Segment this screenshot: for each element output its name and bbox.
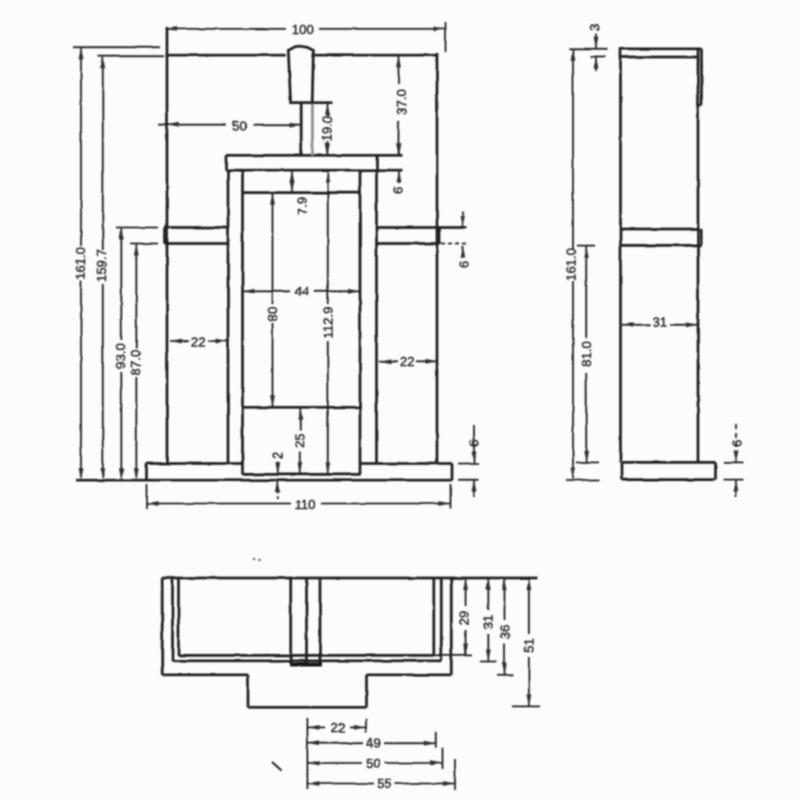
svg-text:87.0: 87.0 xyxy=(128,350,143,376)
svg-text:80: 80 xyxy=(265,307,280,322)
svg-text:81.0: 81.0 xyxy=(579,341,594,367)
svg-text:19.0: 19.0 xyxy=(319,116,334,142)
svg-text:49: 49 xyxy=(366,736,381,751)
svg-text:93.0: 93.0 xyxy=(113,343,128,369)
svg-text:55: 55 xyxy=(377,776,392,791)
svg-text:22: 22 xyxy=(400,354,415,369)
svg-text:50: 50 xyxy=(232,119,247,134)
svg-text:6: 6 xyxy=(457,261,472,268)
svg-text:100: 100 xyxy=(292,22,314,37)
svg-text:6: 6 xyxy=(729,440,744,447)
svg-text:2: 2 xyxy=(270,452,285,459)
svg-text:22: 22 xyxy=(191,335,206,350)
svg-text:25: 25 xyxy=(292,434,307,449)
svg-text:44: 44 xyxy=(295,283,310,298)
svg-text:36: 36 xyxy=(497,625,512,640)
svg-text:110: 110 xyxy=(294,497,315,512)
svg-text:161.0: 161.0 xyxy=(563,248,578,281)
svg-text:7.9: 7.9 xyxy=(294,197,309,215)
svg-text:31: 31 xyxy=(652,315,667,330)
svg-text:51: 51 xyxy=(522,638,537,653)
svg-text:6: 6 xyxy=(467,440,482,447)
svg-text:29: 29 xyxy=(457,611,472,626)
svg-text:161.0: 161.0 xyxy=(73,247,88,280)
svg-text:159.7: 159.7 xyxy=(94,249,109,282)
svg-text:22: 22 xyxy=(330,720,345,735)
svg-text:37.0: 37.0 xyxy=(394,89,409,115)
svg-text:31: 31 xyxy=(481,615,496,630)
svg-text:50: 50 xyxy=(366,756,381,771)
svg-text:6: 6 xyxy=(391,187,406,194)
svg-text:112.9: 112.9 xyxy=(321,306,336,338)
svg-text:3: 3 xyxy=(587,24,602,31)
